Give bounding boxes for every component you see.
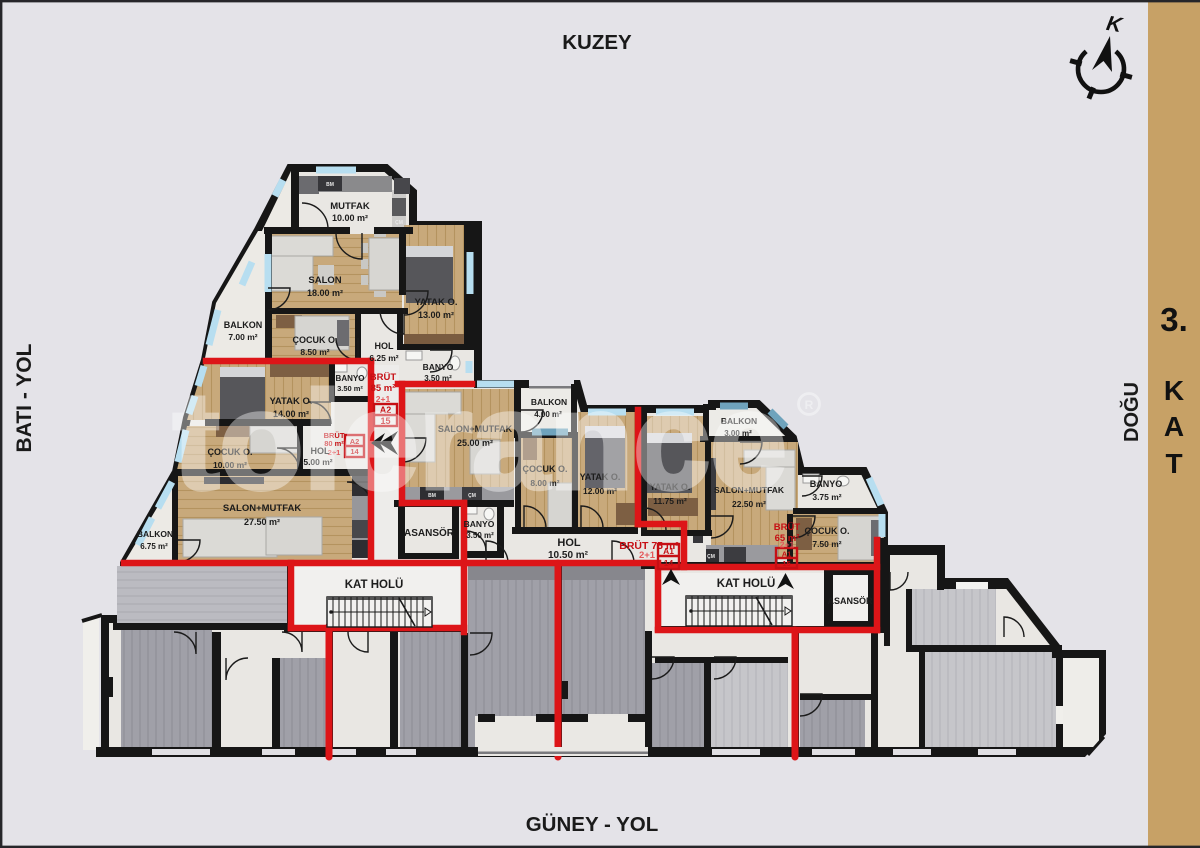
svg-text:SALON: SALON [308, 275, 341, 286]
svg-text:KAT HOLÜ: KAT HOLÜ [717, 577, 776, 590]
svg-text:BALKON: BALKON [224, 320, 263, 330]
svg-text:3.50 m²: 3.50 m² [466, 531, 494, 540]
svg-text:ASANSÖR: ASANSÖR [404, 526, 455, 539]
svg-text:2+1: 2+1 [780, 540, 795, 550]
svg-text:8.50 m²: 8.50 m² [300, 347, 329, 357]
svg-text:K: K [1164, 375, 1184, 406]
svg-text:tolerance: tolerance [173, 364, 787, 518]
svg-text:3.75 m²: 3.75 m² [812, 492, 841, 502]
svg-text:BATI - YOL: BATI - YOL [13, 343, 36, 452]
svg-text:A: A [1164, 411, 1184, 442]
svg-text:10.50 m²: 10.50 m² [548, 550, 589, 561]
svg-text:BALKON: BALKON [137, 529, 173, 539]
svg-text:15: 15 [782, 559, 790, 568]
svg-text:6.25 m²: 6.25 m² [369, 353, 398, 363]
svg-text:14: 14 [664, 558, 674, 568]
svg-text:7.50 m²: 7.50 m² [812, 539, 841, 549]
svg-text:DOĞU: DOĞU [1119, 382, 1143, 442]
svg-text:A1: A1 [663, 546, 674, 556]
svg-text:2+1: 2+1 [639, 550, 656, 561]
svg-text:KAT HOLÜ: KAT HOLÜ [345, 578, 404, 591]
svg-text:7.00 m²: 7.00 m² [228, 332, 257, 342]
svg-text:13.00 m²: 13.00 m² [418, 310, 454, 320]
svg-text:BM: BM [326, 182, 334, 188]
svg-text:27.50 m²: 27.50 m² [244, 517, 280, 527]
svg-text:3.: 3. [1160, 301, 1188, 338]
svg-text:GÜNEY - YOL: GÜNEY - YOL [526, 813, 659, 836]
svg-text:10.00 m²: 10.00 m² [332, 213, 368, 223]
svg-text:ÇM: ÇM [395, 220, 403, 226]
svg-text:R: R [805, 398, 814, 412]
svg-text:MUTFAK: MUTFAK [330, 201, 370, 212]
svg-text:ÇOCUK O.: ÇOCUK O. [805, 526, 850, 536]
svg-text:YATAK O.: YATAK O. [414, 297, 457, 308]
svg-text:HOL: HOL [557, 537, 581, 549]
svg-text:ÇM: ÇM [707, 554, 715, 560]
svg-text:ASANSÖR: ASANSÖR [827, 596, 873, 606]
svg-text:6.75 m²: 6.75 m² [140, 542, 168, 551]
svg-text:T: T [1165, 448, 1182, 479]
svg-text:KUZEY: KUZEY [562, 31, 632, 54]
svg-text:BANYO: BANYO [464, 519, 495, 529]
svg-text:A1: A1 [782, 550, 792, 559]
svg-text:18.00 m²: 18.00 m² [307, 288, 343, 298]
svg-text:BANYO: BANYO [810, 479, 843, 489]
svg-text:ÇOCUK O.: ÇOCUK O. [293, 335, 338, 345]
svg-text:HOL: HOL [375, 341, 395, 351]
svg-text:BRÜT: BRÜT [774, 522, 801, 533]
